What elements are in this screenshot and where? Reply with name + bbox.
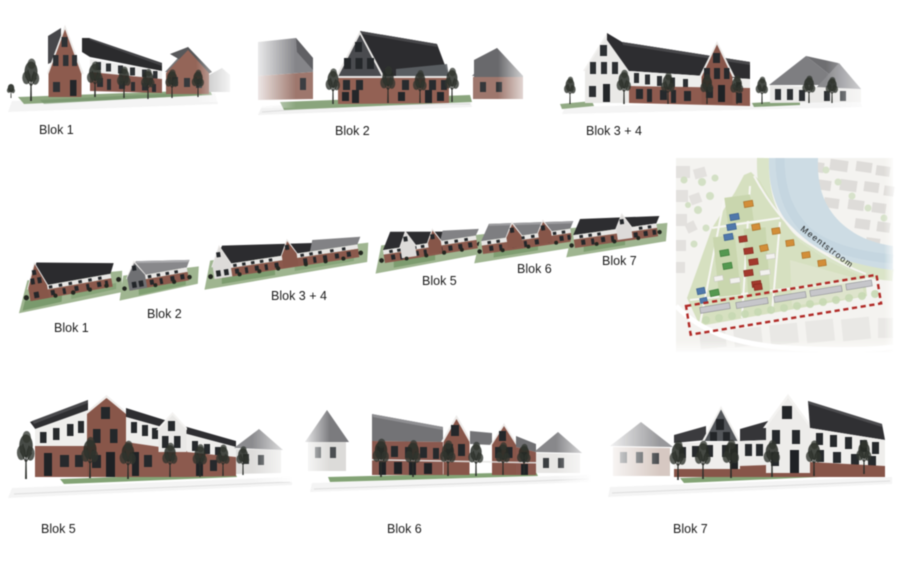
svg-text:Blok 1: Blok 1 xyxy=(39,123,74,137)
svg-text:Blok 2: Blok 2 xyxy=(335,124,370,138)
svg-text:Blok 7: Blok 7 xyxy=(602,254,637,268)
svg-text:Blok 5: Blok 5 xyxy=(422,274,457,288)
svg-text:Blok 3 + 4: Blok 3 + 4 xyxy=(271,289,327,303)
svg-text:Blok 2: Blok 2 xyxy=(147,307,182,321)
svg-text:Blok 6: Blok 6 xyxy=(387,522,422,536)
svg-text:Blok 6: Blok 6 xyxy=(517,262,552,276)
svg-text:Blok 1: Blok 1 xyxy=(54,321,89,335)
svg-text:Blok 3 + 4: Blok 3 + 4 xyxy=(586,124,642,138)
svg-text:Blok 5: Blok 5 xyxy=(41,522,76,536)
svg-text:Blok 7: Blok 7 xyxy=(673,522,708,536)
